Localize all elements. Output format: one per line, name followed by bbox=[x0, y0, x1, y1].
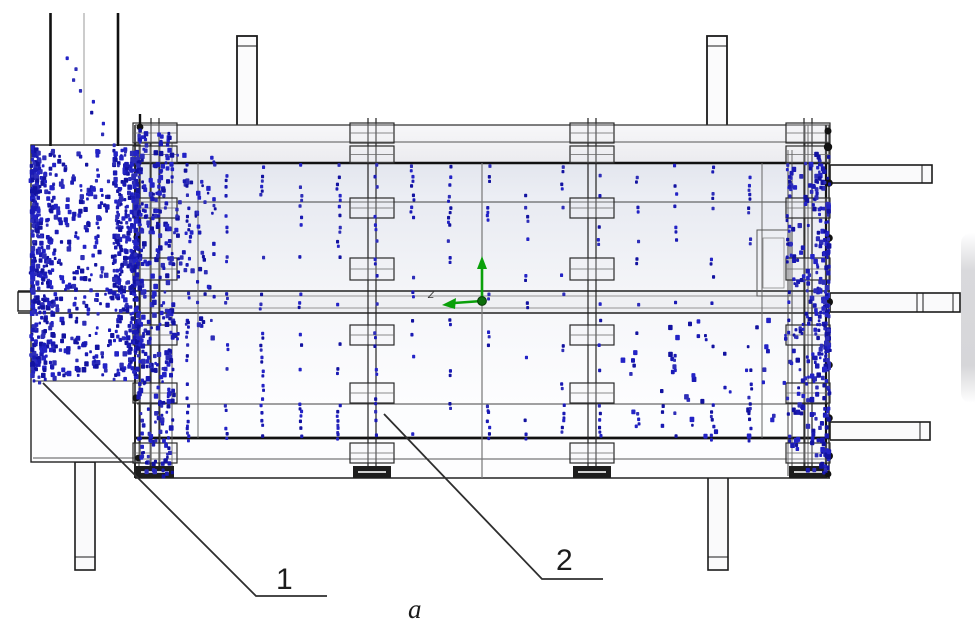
cad-drawing: Z bbox=[0, 0, 975, 634]
feed-chute bbox=[51, 13, 119, 146]
right-edge-panel-tab bbox=[961, 233, 975, 403]
callout-label-1: 1 bbox=[276, 565, 293, 595]
callout-label-2: 2 bbox=[556, 546, 573, 576]
cad-figure: Z 1 2 a bbox=[0, 0, 975, 634]
figure-caption: a bbox=[408, 596, 422, 623]
axis-z-label: Z bbox=[427, 290, 435, 301]
